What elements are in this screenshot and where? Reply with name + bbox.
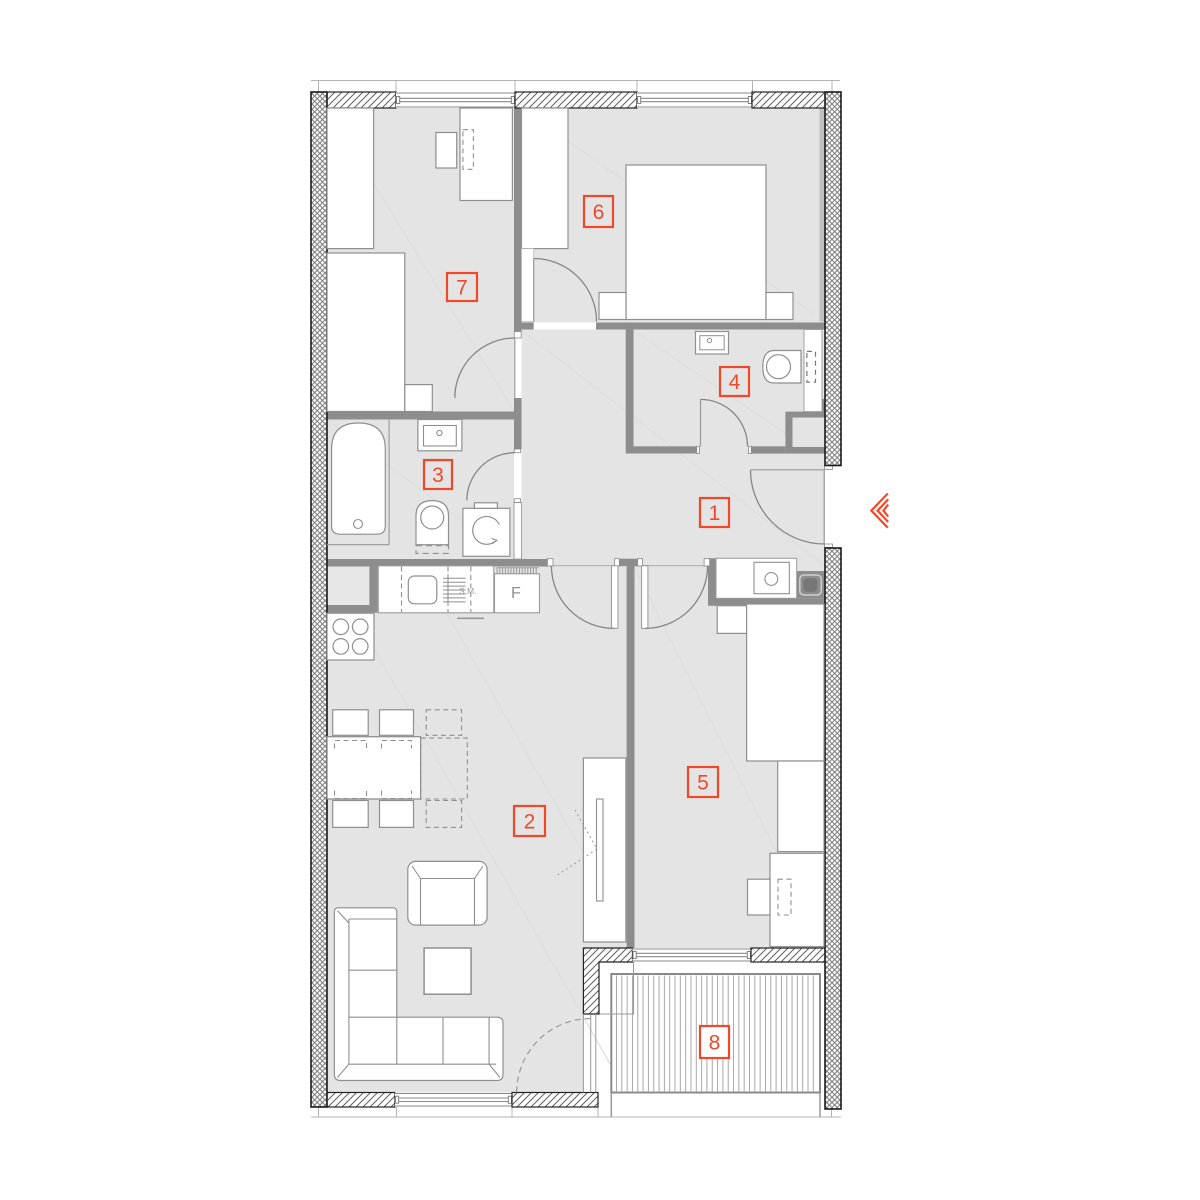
svg-text:2: 2 xyxy=(524,811,536,834)
svg-text:4: 4 xyxy=(729,371,741,394)
svg-text:5: 5 xyxy=(697,772,709,795)
svg-text:1: 1 xyxy=(709,502,721,525)
svg-text:6: 6 xyxy=(593,201,605,224)
svg-text:F: F xyxy=(511,585,521,602)
svg-text:3: 3 xyxy=(432,464,444,487)
svg-text:7: 7 xyxy=(456,277,468,300)
svg-text:S.M.: S.M. xyxy=(459,586,476,596)
svg-text:8: 8 xyxy=(709,1032,721,1055)
